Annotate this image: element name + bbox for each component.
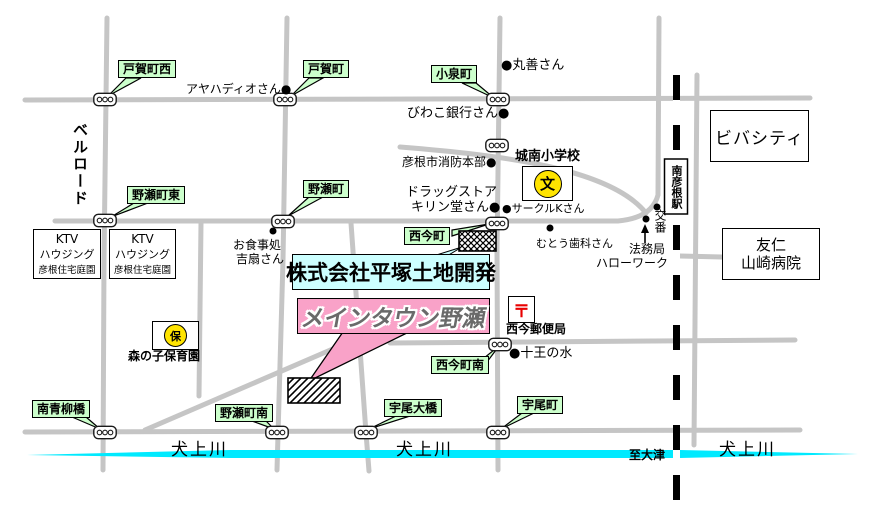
maintown-site-hatch (288, 378, 340, 403)
direction-to-otsu: 至大津 (629, 448, 665, 462)
nursery-icon: 保 (164, 324, 187, 347)
traffic-signal-icon (487, 93, 509, 105)
traffic-signal-icon (487, 426, 509, 438)
label-nishiimacho-minami: 西今町南 (431, 356, 489, 374)
station-minami-hikone: 南彦根駅 (665, 161, 687, 213)
poi-drugstore-line1: ドラッグストア (406, 186, 497, 200)
label-nishiimacho: 西今町 (404, 227, 450, 245)
poi-hello-work: ハローワーク (596, 256, 668, 270)
river-name-left: 犬上川 (171, 443, 228, 457)
label-nosecho-minami: 野瀬町南 (215, 404, 273, 422)
traffic-signal-icon (94, 93, 116, 105)
poi-nursery-name: 森の子保育園 (128, 349, 200, 363)
landmark-viva-city: ビバシティ (710, 110, 809, 162)
poi-muto-dental: むとう歯科さん (536, 237, 613, 251)
post-office-icon: 〒 (513, 297, 530, 322)
poi-drugstore-line2: キリン堂さん● (411, 201, 500, 215)
poi-biwako-bank: びわこ銀行さん● (407, 107, 509, 121)
traffic-signal-icon (94, 214, 116, 226)
maintown-nose: メインタウン野瀬 (297, 298, 490, 334)
route-map: 戸賀町西 戸賀町 小泉町 野瀬町東 野瀬町 西今町 西今町南 南青柳橋 野瀬町南… (0, 0, 875, 514)
label-uocho: 宇尾町 (517, 396, 563, 414)
poi-fire-dept: 彦根市消防本部● (402, 155, 496, 169)
traffic-signal-icon (272, 215, 294, 227)
poi-post-office-name: 西今郵便局 (506, 322, 566, 336)
poi-circle-k: ●サークルKさん (502, 202, 584, 216)
company-hiratsuka-tochi-kaihatsu: 株式会社平塚土地開発 (292, 254, 490, 290)
poi-juo-water: ●十王の水 (509, 347, 572, 361)
road-name-bell-road: ベルロード (73, 122, 87, 207)
landmark-ktv-housing-2: KTV ハウジング 彦根住宅庭園 (109, 229, 176, 279)
landmark-post-office-box: 〒 (508, 296, 535, 323)
traffic-signal-icon (489, 338, 511, 350)
landmark-school-symbol-box: 文 (522, 166, 573, 201)
traffic-signal-icon (94, 426, 116, 438)
poi-restaurant-line2: 吉扇さん (236, 252, 284, 266)
label-minami-aoyagibashi: 南青柳橋 (32, 400, 90, 418)
poi-homukyoku: 法務局 (629, 242, 665, 256)
poi-restaurant-line1: お食事処 (233, 238, 281, 252)
koban-arrow (641, 224, 649, 243)
label-nosecho: 野瀬町 (303, 180, 349, 198)
company-site-hatch (459, 231, 496, 251)
label-koizumicho: 小泉町 (431, 65, 477, 83)
landmark-nursery-symbol-box: 保 (152, 321, 199, 350)
river-name-center: 犬上川 (396, 443, 453, 457)
landmark-ktv-housing-1: KTV ハウジング 彦根住宅庭園 (33, 229, 101, 279)
traffic-signal-icon (266, 426, 288, 438)
traffic-signal-icon (486, 139, 508, 151)
poi-ayahadio: アヤハディオさん● (186, 82, 291, 96)
river-name-right: 犬上川 (719, 443, 776, 457)
label-togacho: 戸賀町 (303, 60, 349, 78)
poi-maruzen: ●丸善さん (501, 59, 564, 73)
school-icon: 文 (534, 170, 562, 198)
label-uo-ohashi: 宇尾大橋 (384, 399, 442, 417)
traffic-signal-icon (355, 426, 377, 438)
label-togacho-nishi: 戸賀町西 (118, 60, 176, 78)
landmark-yujin-yamazaki-hospital: 友仁 山崎病院 (722, 228, 820, 280)
poi-school-name: 城南小学校 (515, 150, 580, 164)
label-nosecho-higashi: 野瀬町東 (127, 186, 185, 204)
traffic-signal-icon (486, 217, 508, 229)
